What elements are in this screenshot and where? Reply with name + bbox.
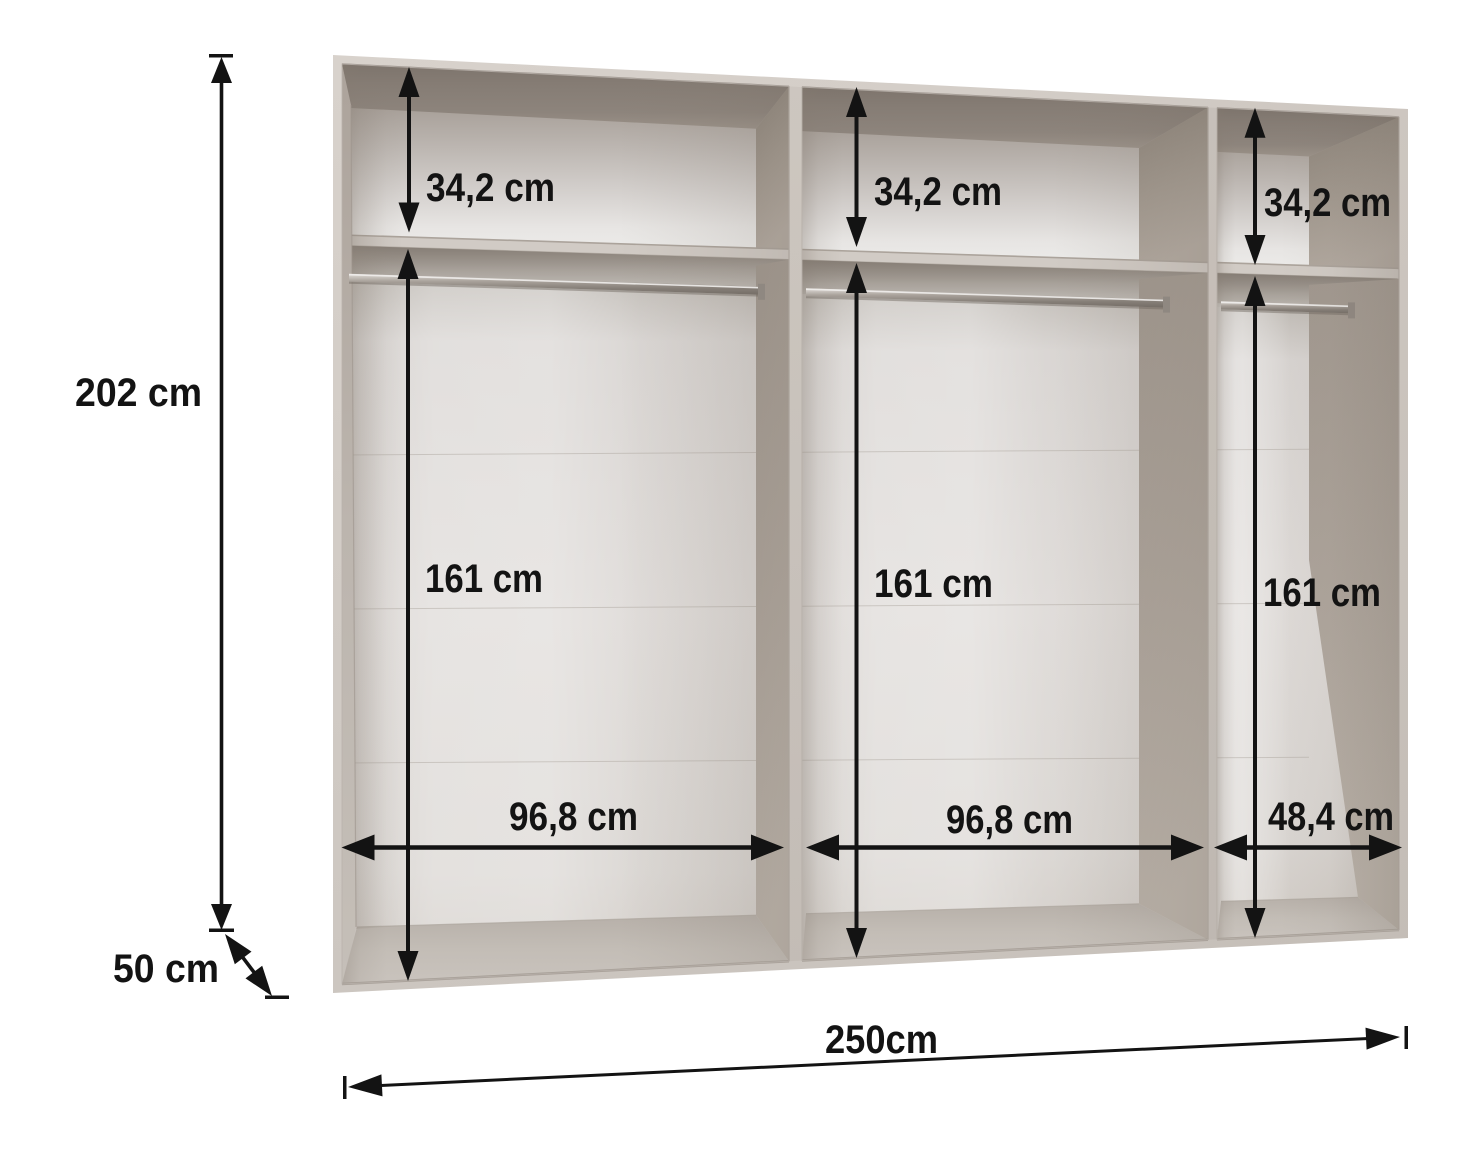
svg-text:161 cm: 161 cm: [425, 557, 543, 601]
svg-text:96,8 cm: 96,8 cm: [509, 795, 638, 839]
svg-text:161 cm: 161 cm: [1263, 571, 1381, 615]
svg-text:250cm: 250cm: [825, 1018, 938, 1062]
svg-text:34,2 cm: 34,2 cm: [1264, 181, 1391, 225]
svg-text:161 cm: 161 cm: [874, 562, 993, 606]
svg-text:34,2 cm: 34,2 cm: [874, 170, 1002, 214]
svg-text:48,4 cm: 48,4 cm: [1268, 795, 1394, 839]
svg-text:96,8 cm: 96,8 cm: [946, 798, 1073, 842]
svg-text:202 cm: 202 cm: [75, 371, 202, 415]
svg-text:34,2 cm: 34,2 cm: [426, 166, 555, 210]
svg-text:50 cm: 50 cm: [113, 947, 219, 991]
